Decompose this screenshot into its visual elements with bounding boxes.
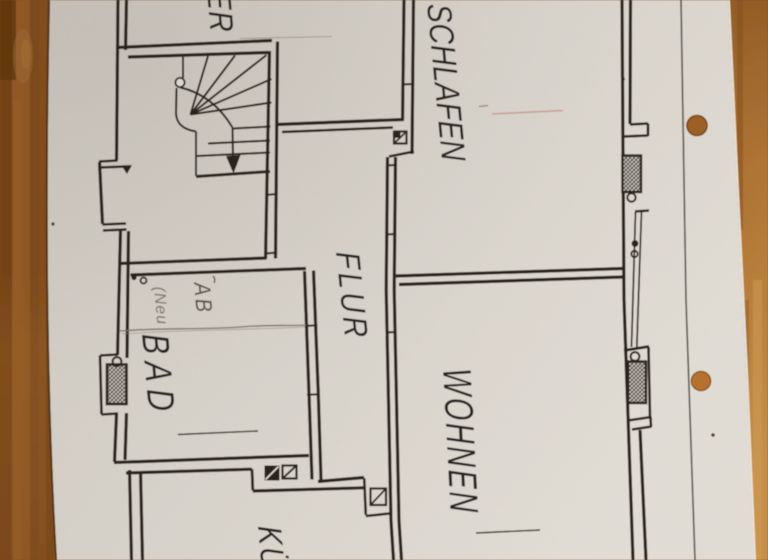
svg-text:ER: ER xyxy=(200,0,241,33)
svg-text:BAD: BAD xyxy=(133,333,182,419)
svg-text:(Neu: (Neu xyxy=(150,286,170,326)
svg-text:KÜ: KÜ xyxy=(251,525,292,560)
svg-text:WOHNEN: WOHNEN xyxy=(434,368,486,515)
svg-text:AB: AB xyxy=(189,279,219,316)
